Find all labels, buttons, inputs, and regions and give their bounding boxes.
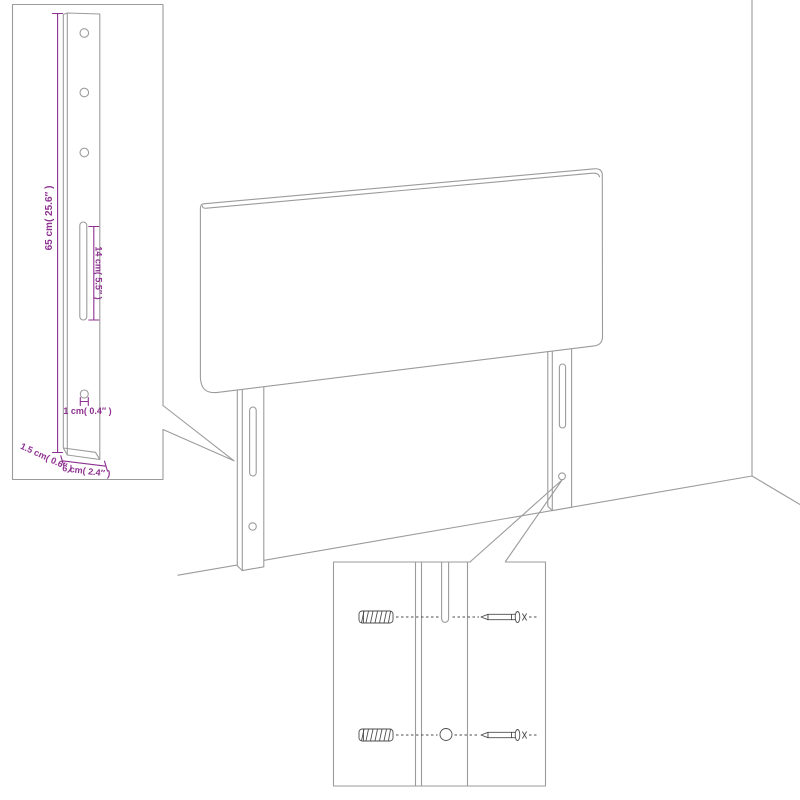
dim-14-label: 14 cm( 5.5″ )	[94, 246, 104, 299]
inset-mounting-detail	[334, 480, 563, 786]
detail-leader-line-right	[506, 480, 563, 562]
detail-box-border	[334, 562, 546, 786]
dim-65-label: 65 cm( 25.6″ )	[44, 186, 55, 251]
dimension-65cm: 65 cm( 25.6″ )	[44, 14, 63, 453]
wall-anchor-icon	[359, 729, 393, 741]
headboard-right-leg	[548, 338, 572, 511]
headboard-panel	[200, 169, 602, 393]
wall-anchor-icon	[359, 611, 393, 623]
detail-leader-line-left	[471, 480, 563, 562]
inset-leader-line-top	[163, 406, 234, 461]
headboard-left-leg	[237, 378, 263, 571]
left-leg-body	[237, 378, 263, 571]
detail-leg-hole	[440, 729, 452, 741]
screw-icon	[481, 612, 527, 623]
inset-leader-line-bottom	[163, 430, 234, 461]
detail-leg-slot	[442, 562, 449, 622]
screw-icon	[481, 730, 527, 741]
dim-1-label: 1 cm( 0.4″ )	[63, 406, 111, 416]
assembly-diagram-canvas: 65 cm( 25.6″ ) 14 cm( 5.5″ ) 1 cm( 0.4″ …	[0, 0, 800, 800]
floor-line-right	[752, 476, 800, 505]
panel-outline	[200, 169, 602, 393]
detail-leg-strip	[416, 562, 468, 786]
